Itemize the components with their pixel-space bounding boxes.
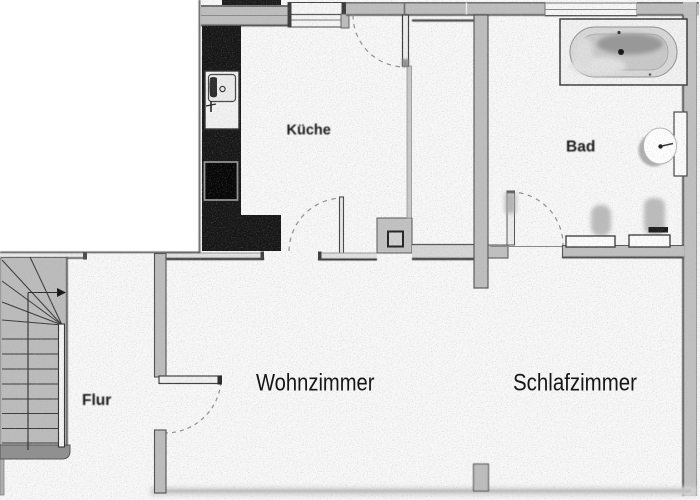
svg-text:Wohnzimmer: Wohnzimmer	[256, 370, 375, 397]
svg-text:Schlafzimmer: Schlafzimmer	[513, 370, 637, 397]
svg-text:Küche: Küche	[287, 123, 331, 139]
svg-text:Bad: Bad	[566, 139, 595, 156]
svg-text:Flur: Flur	[82, 392, 111, 409]
